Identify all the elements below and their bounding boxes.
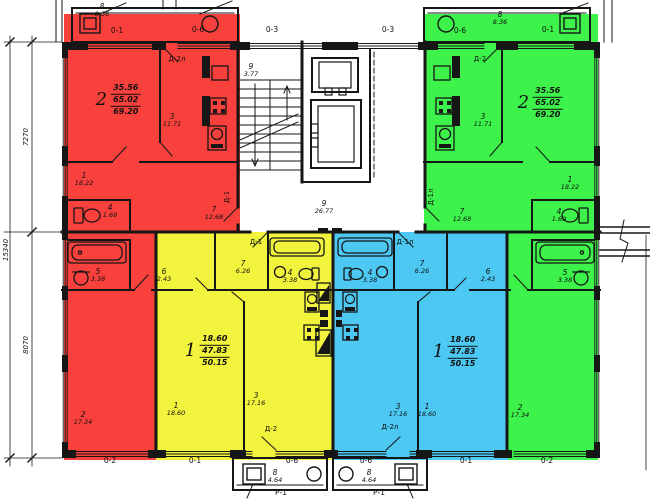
room-green-1: 118.22 [561, 176, 580, 192]
overall-area: 50.15 [200, 357, 229, 368]
total-area: 47.83 [200, 346, 229, 358]
axis-0-3-top-center-r: 0-3 [382, 26, 394, 34]
room-blue-7: 76.26 [415, 260, 429, 276]
room-red-1: 118.22 [75, 172, 94, 188]
room-green-3: 311.71 [474, 113, 493, 129]
door-d2l-top-left: Д-2л [169, 56, 186, 64]
room-yellow-4: 43.38 [283, 269, 297, 285]
room-red-2: 217.34 [74, 411, 93, 427]
living-area: 35.56 [111, 83, 140, 95]
axis-0-6-bottom-left: 0-6 [286, 457, 298, 465]
living-area: 18.60 [448, 335, 477, 347]
room-red-5: 53.38 [91, 268, 105, 284]
axis-0-6-top-left: 0-6 [192, 26, 204, 34]
balcony-top-left: 88.36 [95, 3, 109, 19]
total-area: 65.02 [111, 95, 140, 107]
apartment-number: 1 [433, 343, 444, 361]
living-area: 35.56 [533, 86, 562, 98]
floor-plan: 2 35.56 65.02 69.20 2 35.56 65.02 69.20 … [0, 0, 650, 500]
door-d1l-corridor-right: Д-1л [397, 239, 414, 247]
apartment-summary-green: 2 35.56 65.02 69.20 [518, 86, 563, 120]
balcony-bottom-right: 84.64 [362, 469, 376, 485]
axis-0-3-top-center-l: 0-3 [266, 26, 278, 34]
apartment-summary-blue: 1 18.60 47.83 50.15 [433, 335, 478, 369]
overall-area: 50.15 [448, 358, 477, 369]
dim-8070: 8070 [23, 336, 31, 354]
room-red-7: 712.68 [205, 206, 224, 222]
room-staircase: 93.77 [244, 63, 258, 79]
axis-0-2-bottom-left: 0-2 [104, 457, 116, 465]
dim-7270: 7270 [23, 128, 31, 146]
room-blue-4: 43.38 [363, 269, 377, 285]
room-yellow-6: 62.43 [157, 268, 171, 284]
apartment-number: 2 [96, 91, 107, 109]
axis-0-1-top-right: 0-1 [542, 26, 554, 34]
living-area: 18.60 [200, 334, 229, 346]
room-red-4: 41.69 [103, 204, 117, 220]
room-green-4: 41.69 [552, 208, 566, 224]
plan-linework [0, 0, 650, 500]
room-yellow-1: 118.60 [167, 402, 186, 418]
room-green-7: 712.68 [453, 208, 472, 224]
door-d1l-right-vertical: Д-1л [428, 189, 436, 206]
entrance-r1-left: Р-1 [275, 489, 287, 497]
door-d1-left-vertical: Д-1 [224, 191, 232, 203]
total-area: 47.83 [448, 347, 477, 359]
axis-0-1-top-left: 0-1 [111, 27, 123, 35]
room-corridor: 926.77 [315, 200, 334, 216]
axis-0-6-top-right: 0-6 [454, 27, 466, 35]
room-blue-1: 118.60 [418, 403, 437, 419]
total-area: 65.02 [533, 98, 562, 110]
axis-0-6-bottom-right: 0-6 [360, 457, 372, 465]
apartment-number: 1 [185, 342, 196, 360]
apartment-summary-yellow: 1 18.60 47.83 50.15 [185, 334, 230, 368]
apartment-summary-red: 2 35.56 65.02 69.20 [96, 83, 141, 117]
entrance-r1-right: Р-1 [373, 489, 385, 497]
balcony-bottom-left: 84.64 [268, 469, 282, 485]
room-blue-3: 317.16 [389, 403, 408, 419]
room-green-2: 217.34 [511, 404, 530, 420]
apartment-number: 2 [518, 94, 529, 112]
axis-0-2-bottom-right: 0-2 [541, 457, 553, 465]
door-d2-top-right: Д-2 [474, 56, 486, 64]
room-yellow-3: 317.16 [247, 392, 266, 408]
room-blue-6: 62.43 [481, 268, 495, 284]
room-green-5: 53.38 [558, 269, 572, 285]
axis-0-1-bottom-right: 0-1 [460, 457, 472, 465]
room-red-3: 311.71 [163, 113, 182, 129]
room-yellow-7: 76.26 [236, 260, 250, 276]
dim-15340: 15340 [3, 239, 11, 261]
overall-area: 69.20 [533, 109, 562, 120]
door-d1-corridor-left: Д-1 [250, 239, 262, 247]
axis-0-1-bottom-left: 0-1 [189, 457, 201, 465]
door-d2-bottom-left: Д-2 [265, 426, 277, 434]
balcony-top-right: 88.36 [493, 11, 507, 27]
overall-area: 69.20 [111, 106, 140, 117]
door-d2l-bottom-right: Д-2л [382, 424, 399, 432]
